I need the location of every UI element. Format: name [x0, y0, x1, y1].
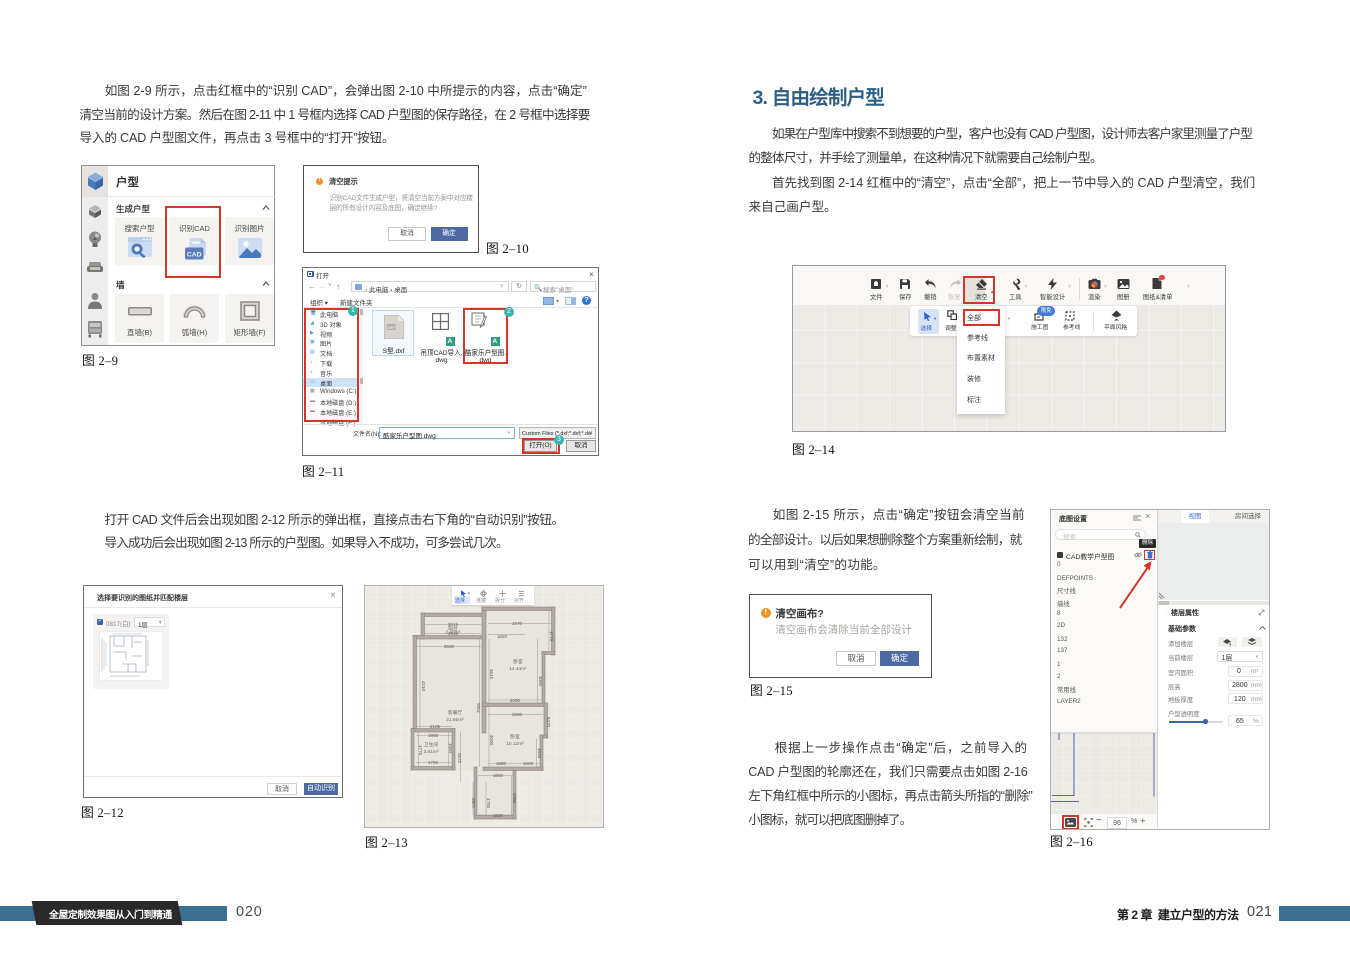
svg-text:卫生间: 卫生间 — [424, 741, 439, 748]
svg-text:3000: 3000 — [538, 676, 543, 687]
svg-text:1775: 1775 — [418, 745, 423, 756]
svg-text:2.95m²: 2.95m² — [446, 630, 461, 636]
svg-text:21.66m²: 21.66m² — [446, 717, 464, 723]
svg-text:1620: 1620 — [537, 748, 542, 759]
svg-text:3230: 3230 — [457, 752, 462, 763]
svg-text:1550: 1550 — [448, 743, 453, 754]
svg-text:1790: 1790 — [428, 760, 439, 765]
svg-text:1530: 1530 — [493, 813, 504, 818]
svg-text:卧室: 卧室 — [510, 733, 520, 740]
svg-text:7055: 7055 — [476, 702, 481, 713]
svg-text:1660: 1660 — [493, 773, 504, 778]
svg-text:1750: 1750 — [486, 798, 491, 809]
svg-text:卧室: 卧室 — [513, 658, 523, 665]
svg-text:3500: 3500 — [444, 644, 455, 649]
svg-text:2060: 2060 — [512, 793, 517, 804]
svg-text:1820: 1820 — [497, 634, 508, 639]
svg-text:3090: 3090 — [510, 698, 521, 703]
svg-text:1770: 1770 — [549, 631, 554, 642]
svg-text:1880: 1880 — [496, 761, 507, 766]
svg-text:1480: 1480 — [471, 797, 476, 808]
svg-text:1600: 1600 — [523, 761, 534, 766]
svg-text:3615: 3615 — [489, 669, 494, 680]
svg-text:1870: 1870 — [512, 621, 523, 626]
svg-text:4210: 4210 — [421, 681, 426, 692]
svg-text:10.12m²: 10.12m² — [506, 741, 524, 747]
svg-text:客餐厅: 客餐厅 — [448, 709, 463, 716]
svg-text:14.44m²: 14.44m² — [509, 666, 527, 672]
svg-text:3090: 3090 — [489, 735, 494, 746]
svg-text:DXF: DXF — [387, 325, 396, 330]
svg-text:5470: 5470 — [546, 717, 551, 728]
svg-text:1905: 1905 — [428, 733, 439, 738]
svg-text:3290: 3290 — [512, 712, 523, 717]
svg-text:3.61m²: 3.61m² — [424, 749, 439, 755]
svg-text:2105: 2105 — [430, 724, 441, 729]
